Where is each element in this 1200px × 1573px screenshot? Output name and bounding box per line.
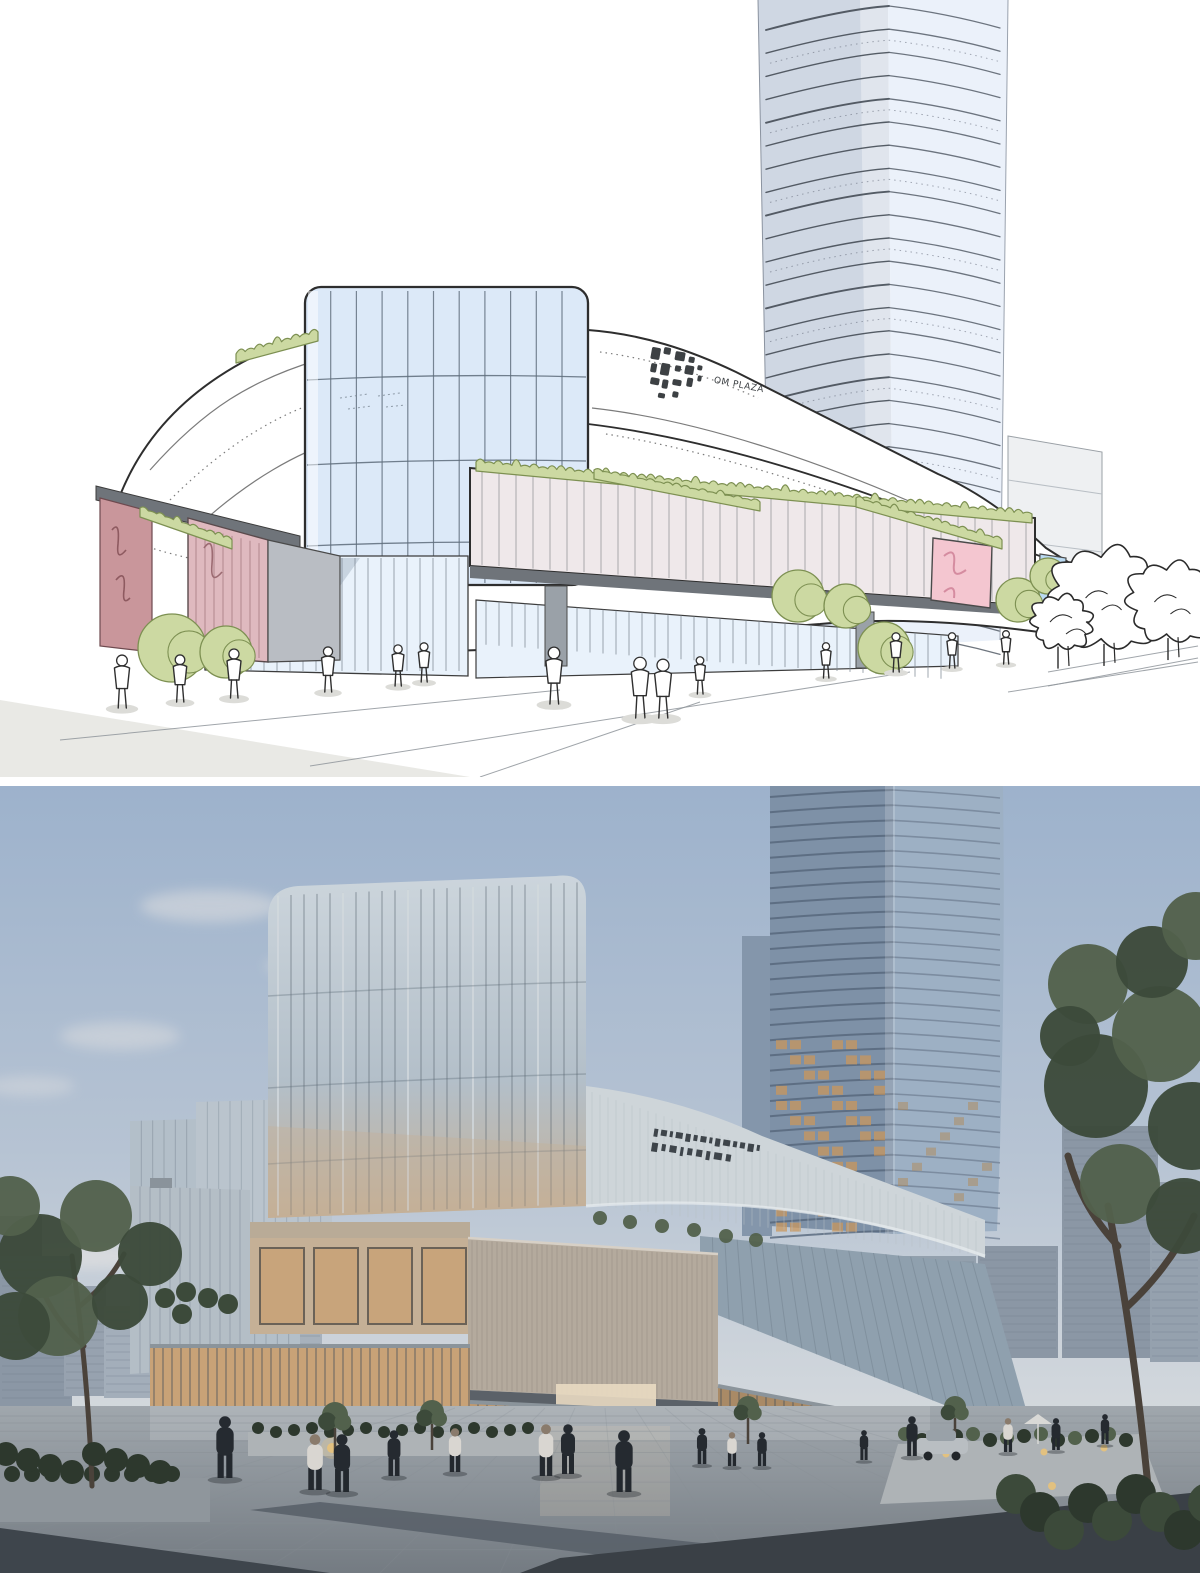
render-panel	[0, 786, 1200, 1573]
render-image	[0, 786, 1200, 1573]
sketch-drawing: OM PLAZA	[0, 0, 1200, 777]
image-stage: OM PLAZA	[0, 0, 1200, 1573]
sketch-panel: OM PLAZA	[0, 0, 1200, 777]
panel-divider	[0, 777, 1200, 786]
